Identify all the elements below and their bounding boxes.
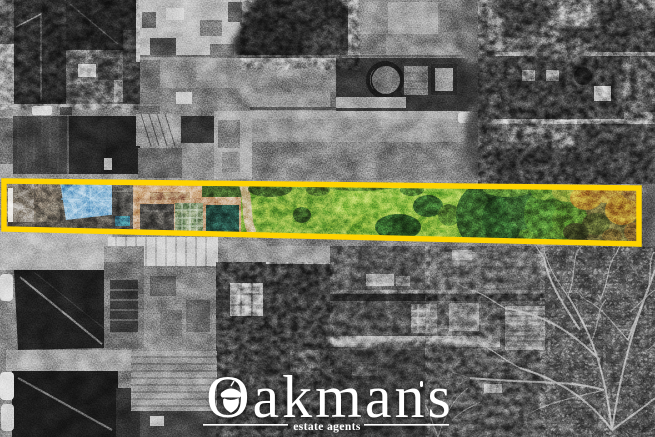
svg-text:estate agents: estate agents	[293, 421, 361, 433]
